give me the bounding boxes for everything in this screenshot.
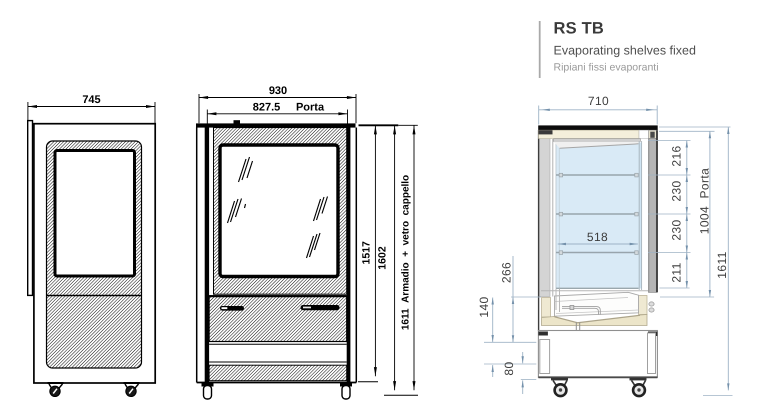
svg-text:1004 Porta: 1004 Porta xyxy=(698,168,712,234)
svg-text:80: 80 xyxy=(502,361,516,375)
svg-text:1517: 1517 xyxy=(361,241,373,265)
svg-text:216: 216 xyxy=(670,145,684,166)
svg-text:Evaporating shelves fixed: Evaporating shelves fixed xyxy=(554,44,696,58)
svg-text:Porta: Porta xyxy=(296,102,325,114)
svg-text:1611 Armadio + vetro cappe: 1611 Armadio + vetro cappello xyxy=(401,175,412,330)
svg-text:211: 211 xyxy=(670,262,684,282)
svg-text:930: 930 xyxy=(269,85,287,97)
svg-text:710: 710 xyxy=(588,94,609,108)
svg-text:140: 140 xyxy=(477,296,491,317)
svg-text:230: 230 xyxy=(670,180,684,201)
svg-text:Ripiani fissi evaporanti: Ripiani fissi evaporanti xyxy=(554,62,659,74)
svg-text:266: 266 xyxy=(500,262,514,283)
svg-text:230: 230 xyxy=(670,219,684,240)
svg-text:1611: 1611 xyxy=(715,251,729,278)
svg-text:745: 745 xyxy=(82,94,100,106)
svg-text:827.5: 827.5 xyxy=(253,102,281,114)
svg-text:518: 518 xyxy=(587,230,608,244)
svg-text:1602: 1602 xyxy=(377,246,389,270)
svg-text:RS TB: RS TB xyxy=(554,20,605,38)
